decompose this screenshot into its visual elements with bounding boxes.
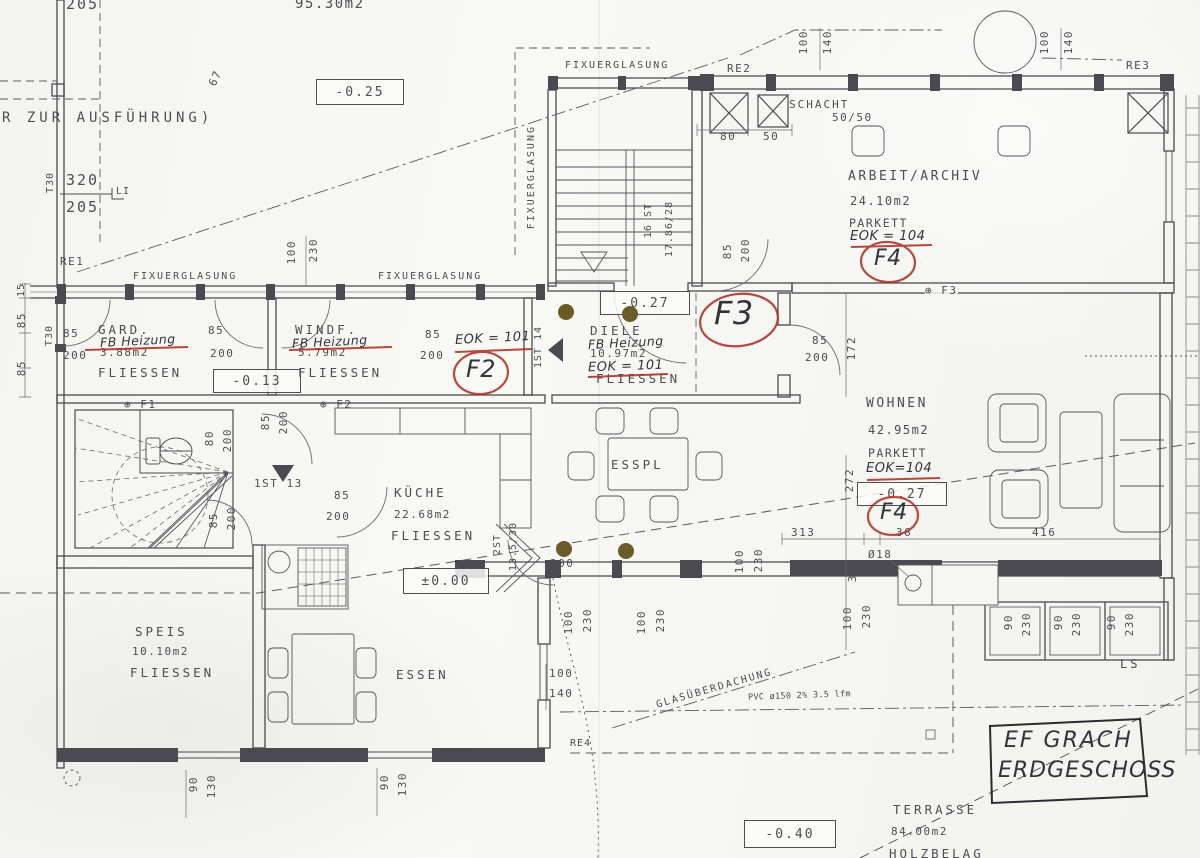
schacht-size: 50/50 [832, 112, 873, 125]
win2-130: 130 [397, 772, 410, 796]
doorK-200: 200 [278, 410, 291, 434]
point-f2: ⊕ F2 [320, 399, 353, 412]
doorK-85: 85 [260, 414, 273, 430]
dim-100-re2: 100 [798, 30, 811, 54]
doorG-200: 200 [326, 511, 350, 524]
tw1-230: 230 [1021, 612, 1034, 636]
plan-note: R ZUR AUSFÜHRUNG) [2, 110, 213, 126]
armchair [990, 470, 1048, 528]
dim-320: 320 [66, 172, 99, 189]
dim-230-w1: 230 [582, 608, 595, 632]
dim-100-door: 100 [734, 549, 747, 573]
dim-172: 172 [846, 336, 859, 360]
dim-140-essen: 140 [549, 688, 573, 701]
marker-f4-wohnen: F4 [880, 500, 908, 525]
doorF-200: 200 [740, 238, 753, 262]
room-speis: SPEIS [135, 625, 188, 639]
windf-area: 5.79m2 [298, 347, 347, 360]
marker-f3: F3 [714, 294, 754, 332]
gard-door-200: 200 [63, 350, 87, 363]
lower-step-note: 1ST 13 [254, 478, 303, 491]
arbeit-eok-note: EOK = 104 [850, 229, 925, 244]
glazing-label-a: FIXUERGLASUNG [133, 271, 237, 283]
marker-f4-arbeit: F4 [874, 246, 902, 271]
upper-floor-area: 95.30m2 [295, 0, 365, 12]
dim-t30-b: T30 [44, 325, 56, 346]
dim-100-band: 100 [286, 240, 299, 264]
room-esspl: ESSPL [611, 458, 664, 472]
arbeit-area: 24.10m2 [850, 195, 911, 209]
level-box-upper: -0.25 [316, 79, 404, 105]
floorplan-sheet: 205 R ZUR AUSFÜHRUNG) 320 LI 205 T30 RE1… [0, 0, 1200, 858]
room-wohnen: WOHNEN [866, 397, 928, 412]
ref-re4: RE4 [570, 738, 591, 750]
door2-200: 200 [210, 348, 234, 361]
windf-floor: FLIESSEN [298, 366, 382, 380]
dim-100-w2: 100 [636, 610, 649, 634]
dim-85-left1: 85 [16, 312, 29, 328]
doorJ-200: 200 [550, 558, 574, 571]
kueche-floor: FLIESSEN [391, 529, 475, 543]
wohnen-area: 42.95m2 [868, 424, 929, 438]
doorH-200: 200 [222, 428, 235, 452]
title-line1: EF GRACH [1004, 728, 1133, 753]
stove [268, 551, 290, 573]
ref-re1: RE1 [60, 256, 84, 269]
level-box-kitchen: ±0.00 [403, 568, 489, 594]
tw1-90: 90 [1003, 614, 1016, 630]
furniture [64, 11, 1170, 786]
kitchen-rise: 13.5/30 [508, 522, 520, 571]
gard-door-85: 85 [63, 328, 79, 341]
wohnen-floor: PARKETT [868, 447, 927, 460]
terrasse-floor: HOLZBELAG [889, 847, 984, 858]
point-f1: ⊕ F1 [124, 399, 157, 412]
essen-table [292, 634, 354, 724]
tree [974, 11, 1036, 73]
dim-205-b: 205 [66, 199, 99, 216]
door2-85: 85 [208, 325, 224, 338]
glazing-label-vert: FIXUERGLASUNG [526, 125, 538, 229]
doorF-85: 85 [722, 243, 735, 259]
point-f3: ⊕ F3 [925, 285, 958, 298]
shaft-columns [710, 93, 1168, 133]
tw3-90: 90 [1106, 614, 1119, 630]
room-arbeit: ARBEIT/ARCHIV [848, 170, 982, 185]
dim-416: 416 [1032, 527, 1056, 540]
hall-step-note: 1ST 14 [533, 326, 545, 368]
door3-200: 200 [420, 350, 444, 363]
shaft-dim-80: 80 [720, 131, 736, 144]
dim-230-sb: 230 [861, 604, 874, 628]
gard-area: 3.88m2 [100, 347, 149, 360]
sideboard [898, 565, 998, 605]
terrasse-area: 84.00m2 [891, 826, 948, 839]
glazing-label-b: FIXUERGLASUNG [378, 271, 482, 283]
dim-140-re3: 140 [1063, 30, 1076, 54]
win1-130: 130 [206, 774, 219, 798]
doorI-85: 85 [208, 512, 221, 528]
doorG-85: 85 [334, 490, 350, 503]
dim-205-top: 205 [66, 0, 99, 13]
tw2-90: 90 [1053, 614, 1066, 630]
dim-36-a: 36 [896, 527, 912, 540]
win2-90: 90 [379, 774, 392, 790]
shaft-dim-50: 50 [763, 131, 779, 144]
dim-100-re3: 100 [1039, 30, 1052, 54]
marker-f2: F2 [466, 355, 496, 383]
doorE-85: 85 [812, 335, 828, 348]
dim-140-re2: 140 [822, 30, 835, 54]
sofa [1114, 394, 1170, 532]
door3-85: 85 [425, 329, 441, 342]
dim-100-sb: 100 [842, 606, 855, 630]
label-li: LI [116, 186, 130, 198]
dim-85-left2: 85 [16, 360, 29, 376]
wohnen-eok-note: EOK=104 [866, 461, 932, 476]
coffee-table [1060, 412, 1102, 508]
dim-100-essen: 100 [549, 668, 573, 681]
dim-272: 272 [844, 468, 857, 492]
room-terrasse: TERRASSE [893, 803, 977, 817]
dim-230-band: 230 [308, 238, 321, 262]
gard-floor: FLIESSEN [98, 366, 182, 380]
diele-floor: FLIESSEN [596, 372, 680, 386]
room-kueche: KÜCHE [394, 486, 447, 500]
window-mullions [55, 74, 1174, 762]
doorE-200: 200 [805, 352, 829, 365]
doorH-80: 80 [204, 430, 217, 446]
hall-step-arrow [548, 338, 563, 362]
speis-floor: FLIESSEN [130, 666, 214, 680]
dim-dia18: Ø18 [868, 549, 892, 562]
room-essen: ESSEN [396, 668, 449, 682]
dim-100-w1: 100 [563, 610, 576, 634]
dim-230-w2: 230 [655, 608, 668, 632]
schacht-label: SCHACHT [789, 99, 849, 112]
stair-rise: 17.86/28 [664, 201, 676, 257]
glazing-label-top: FIXUERGLASUNG [565, 60, 669, 72]
dim-t30-a: T30 [45, 172, 57, 193]
level-box-terrace: -0.40 [744, 820, 836, 848]
ls-label: LS [1120, 658, 1140, 672]
stair-steps: 16 ST [643, 203, 655, 238]
speis-area: 10.10m2 [132, 646, 189, 659]
dim-313: 313 [791, 527, 815, 540]
kueche-area: 22.68m2 [394, 509, 451, 522]
dim-230-door: 230 [753, 548, 766, 572]
doorI-200: 200 [226, 506, 239, 530]
dim-36-b: 36 [847, 566, 860, 582]
win1-90: 90 [188, 776, 201, 792]
title-line2: ERDGESCHOSS [998, 758, 1176, 783]
tw3-230: 230 [1124, 612, 1137, 636]
dim-15-left: 15 [16, 283, 28, 297]
dimension-lines [19, 28, 1199, 818]
level-box-hall: -0.27 [600, 291, 690, 315]
level-box-entry: -0.13 [213, 369, 301, 393]
scan-crease [598, 0, 600, 858]
armchair [988, 394, 1046, 452]
ref-re3: RE3 [1126, 60, 1150, 73]
kitchen-steps: 2ST [492, 534, 504, 555]
tw2-230: 230 [1071, 612, 1084, 636]
ref-re2: RE2 [727, 63, 751, 76]
